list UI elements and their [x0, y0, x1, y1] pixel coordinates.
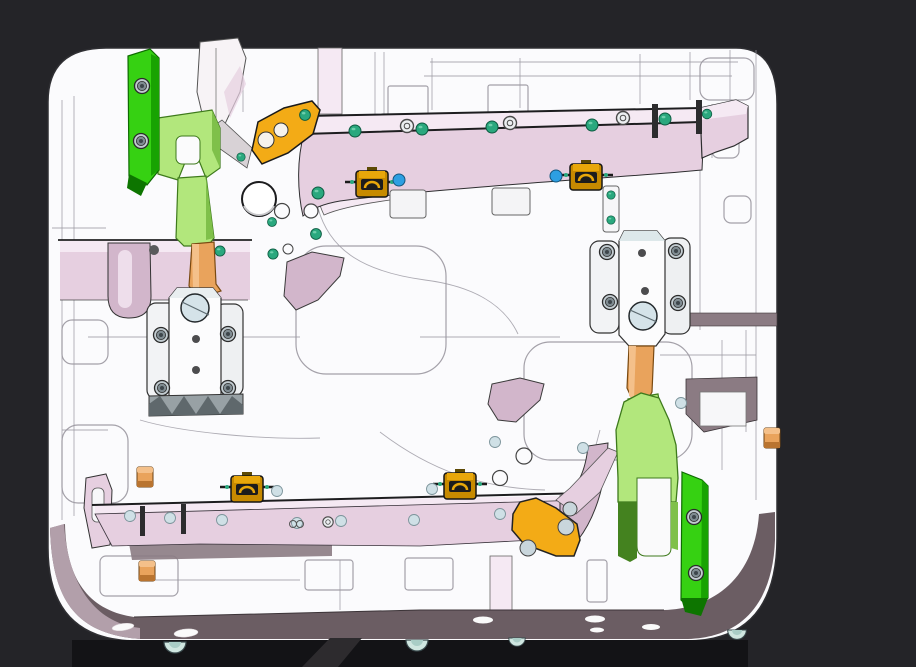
pin-dot: [490, 437, 501, 448]
pin-dot: [495, 509, 506, 520]
pin-dot: [217, 515, 228, 526]
clamp-bolt: [134, 134, 149, 149]
pin-dot: [676, 398, 687, 409]
blue-pin: [393, 174, 405, 186]
orange-plug: [137, 467, 153, 487]
clamp-bolt: [689, 566, 704, 581]
pin-dot: [427, 484, 438, 495]
screw-dot: [416, 123, 428, 135]
hex-bolt: [603, 295, 618, 310]
pin-dark: [149, 245, 159, 255]
screw-dot: [237, 153, 245, 161]
screw-dot: [311, 229, 322, 240]
screw-head: [504, 117, 517, 130]
clamp-bolt: [687, 510, 702, 525]
screw-dot: [486, 121, 498, 133]
screw-dot: [607, 191, 615, 199]
pink-column-bottom: [490, 556, 512, 614]
cad-viewport[interactable]: [0, 0, 916, 667]
pin-dot: [409, 515, 420, 526]
pin-dot: [125, 511, 136, 522]
screw-dot: [586, 119, 598, 131]
hex-bolt: [671, 296, 686, 311]
screw-dot: [702, 109, 712, 119]
rail-socket: [492, 188, 530, 215]
screw-head: [617, 112, 630, 125]
green-clamp-bar-bottom-right[interactable]: [681, 472, 708, 616]
screw-dot: [607, 216, 615, 224]
screw-dot: [268, 218, 277, 227]
screw-dot: [268, 249, 278, 259]
rail-socket: [390, 190, 426, 218]
green-clamp-bar-top-left[interactable]: [127, 49, 159, 196]
blue-pin: [550, 170, 562, 182]
screw-head: [401, 120, 414, 133]
screw-dot: [659, 113, 671, 125]
hex-bolt: [154, 328, 169, 343]
slide-lock-unit-left[interactable]: [147, 288, 243, 416]
locator-sphere[interactable]: [242, 182, 276, 216]
screw-dot: [300, 110, 311, 121]
screw-dot: [349, 125, 361, 137]
hex-bolt: [221, 381, 236, 396]
green-clamp-arm-bottom-right[interactable]: [616, 393, 678, 562]
slide-lock-unit-right[interactable]: [590, 231, 690, 346]
hex-bolt: [221, 327, 236, 342]
pin-dot: [272, 486, 283, 497]
hex-bolt: [600, 245, 615, 260]
pin-dot: [578, 443, 589, 454]
hex-bolt: [669, 244, 684, 259]
screw-dot: [312, 187, 324, 199]
pin-dot: [165, 513, 176, 524]
orange-plug-right-edge: [764, 428, 780, 448]
screw-head: [323, 517, 333, 527]
upper-guide-plate-right: [603, 186, 619, 232]
screw-dot: [215, 246, 225, 256]
cad-canvas[interactable]: [0, 0, 916, 667]
pin-dot: [336, 516, 347, 527]
pink-column-top: [318, 48, 342, 114]
hex-bolt: [155, 381, 170, 396]
orange-plug: [139, 561, 155, 581]
clamp-bolt: [135, 79, 150, 94]
